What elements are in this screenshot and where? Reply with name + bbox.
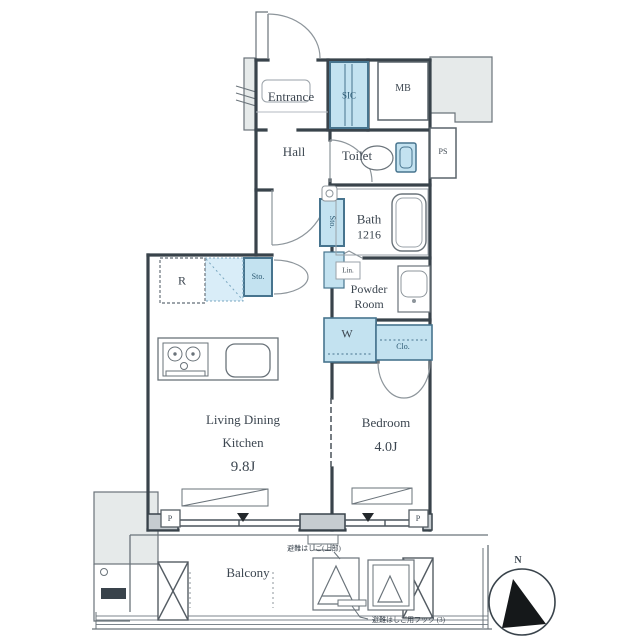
label-hatch-note: 避難はしご(上部) <box>287 545 341 554</box>
compass <box>489 569 555 635</box>
bathtub <box>392 194 426 251</box>
label-toilet: Toilet <box>342 148 372 164</box>
label-ldk: Living Dining Kitchen 9.8J <box>206 412 280 476</box>
label-washer: W <box>341 327 352 342</box>
floorplan-page: Entrance SIC MB Hall Toilet PS Bath 1216… <box>0 0 640 640</box>
label-bath: Bath 1216 <box>357 211 382 242</box>
wall-strip-left-of-entrance <box>244 58 256 130</box>
label-powder-room: Powder Room <box>351 282 388 312</box>
window-shutter-boxes <box>182 488 412 506</box>
label-entrance: Entrance <box>268 89 314 105</box>
label-refrigerator: R <box>178 274 186 289</box>
label-pillar-left: P <box>168 514 172 524</box>
label-storage-kitchen: Sto. <box>252 272 265 282</box>
label-balcony: Balcony <box>226 565 269 581</box>
label-closet: Clo. <box>396 342 410 352</box>
label-storage-hall: Sto. <box>327 216 337 229</box>
upper-cabinet-area <box>205 258 243 301</box>
kitchen-spaces <box>160 258 243 303</box>
label-mb: MB <box>395 83 411 96</box>
bath-entry-basin <box>322 186 337 201</box>
label-compass-north: N <box>514 555 521 568</box>
label-hall: Hall <box>283 144 305 160</box>
entrance-door <box>256 12 320 58</box>
kitchen-fixtures <box>158 338 278 380</box>
window-piers <box>148 514 432 530</box>
pillar-boxes <box>161 510 428 527</box>
label-bedroom: Bedroom 4.0J <box>362 415 410 457</box>
label-ps: PS <box>439 147 448 157</box>
corridor-block-top-right <box>430 57 492 122</box>
label-linen: Lin. <box>342 267 353 276</box>
label-pillar-right: P <box>416 514 420 524</box>
label-footnote: 避難はしご用フック (3) <box>372 616 445 625</box>
label-sic: SIC <box>342 90 356 101</box>
